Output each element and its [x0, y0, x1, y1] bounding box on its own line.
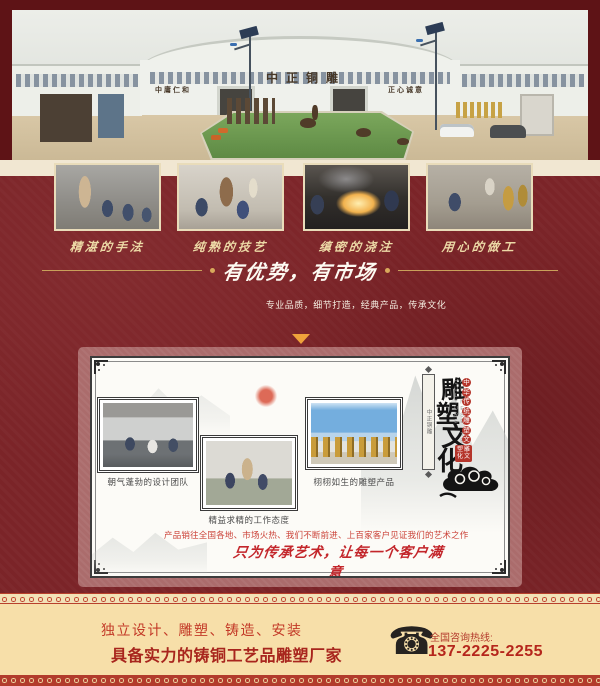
deer-sculpture [356, 128, 371, 137]
medallion-column: 中华传统雕塑文化 [462, 378, 471, 454]
culture-panel: 朝气蓬勃的设计团队 精益求精的工作态度 栩栩如生的雕塑产品 中正铜雕 雕塑文化 … [78, 347, 522, 587]
footer-services-line: 独立设计、雕塑、铸造、安装 [101, 620, 303, 640]
dark-opening [40, 94, 92, 142]
factory-door-right [330, 86, 368, 115]
corner-ornament-icon [94, 360, 108, 374]
footer: 独立设计、雕塑、铸造、安装 具备实力的铸铜工艺品雕塑厂家 ☎ 全国咨询热线: 1… [0, 593, 600, 686]
bronze-statue-group [227, 98, 275, 124]
process-photo-finishing [177, 163, 284, 231]
process-photo-sculpting [54, 163, 161, 231]
section-subtitle: 专业品质，细节打造，经典产品，传承文化 [56, 298, 600, 311]
design-team-image [103, 403, 193, 467]
corner-ornament-icon [492, 360, 506, 374]
gold-statue-row [456, 102, 504, 118]
left-wing-windows [16, 74, 138, 87]
decor-dot [385, 268, 390, 273]
panel-slogan-calligraphy: 只为传承艺术，让每一个客户满意 [224, 542, 450, 578]
building-sign-right: 正心诚意 [376, 85, 436, 95]
culture-photo-work-attitude [200, 435, 298, 511]
panel-note-text: 产品销往全国各地、市场火热、我们不断前进、上百家客户见证我们的艺术之作 [164, 529, 469, 541]
building-sign-left: 中庸仁和 [143, 85, 203, 95]
street-lamp [435, 30, 437, 130]
ink-cloud-icon [438, 463, 504, 499]
blue-door [98, 94, 124, 138]
seal-stamp-icon: 雕塑文化 [455, 445, 472, 462]
orange-chairs [218, 128, 228, 133]
deer-sculpture [397, 138, 409, 145]
corner-ornament-icon [492, 560, 506, 574]
decor-line-left [42, 270, 202, 271]
hotline-label: 全国咨询热线: [430, 629, 493, 644]
decor-line-right [398, 270, 558, 271]
culture-photo-products [305, 397, 403, 470]
right-wing-windows [462, 74, 584, 87]
section-title: 有优势，有市场 [221, 256, 379, 285]
section-heading-row: 有优势，有市场 [0, 252, 600, 288]
down-triangle-icon [292, 334, 310, 344]
culture-photo-caption: 精益求精的工作态度 [200, 514, 298, 526]
decor-dot [210, 268, 215, 273]
footer-pattern-strip-bottom [0, 675, 600, 686]
lamp-head [416, 39, 423, 42]
hero-frame: 中庸仁和 中正铜雕 正心诚意 [0, 0, 600, 160]
deer-sculpture [312, 105, 318, 120]
culture-panel-inner: 朝气蓬勃的设计团队 精益求精的工作态度 栩栩如生的雕塑产品 中正铜雕 雕塑文化 … [90, 356, 510, 578]
process-photo-casting [303, 163, 410, 231]
products-image [311, 403, 397, 464]
lamp-head [230, 43, 237, 46]
red-sun-icon [255, 385, 277, 407]
hotline-phone-number: 137-2225-2255 [428, 643, 543, 661]
dark-car [490, 125, 526, 138]
footer-headline: 具备实力的铸铜工艺品雕塑厂家 [111, 642, 342, 666]
culture-photo-caption: 朝气蓬勃的设计团队 [97, 476, 199, 488]
process-photo-workshop [426, 163, 533, 231]
work-attitude-image [206, 441, 292, 505]
factory-panorama-photo: 中庸仁和 中正铜雕 正心诚意 [12, 10, 588, 160]
white-car [440, 124, 474, 137]
page-root: 中庸仁和 中正铜雕 正心诚意 精湛的手法 [0, 0, 600, 686]
footer-pattern-strip-top [0, 593, 600, 604]
culture-photo-design-team [97, 397, 199, 473]
culture-photo-caption: 栩栩如生的雕塑产品 [305, 476, 403, 488]
